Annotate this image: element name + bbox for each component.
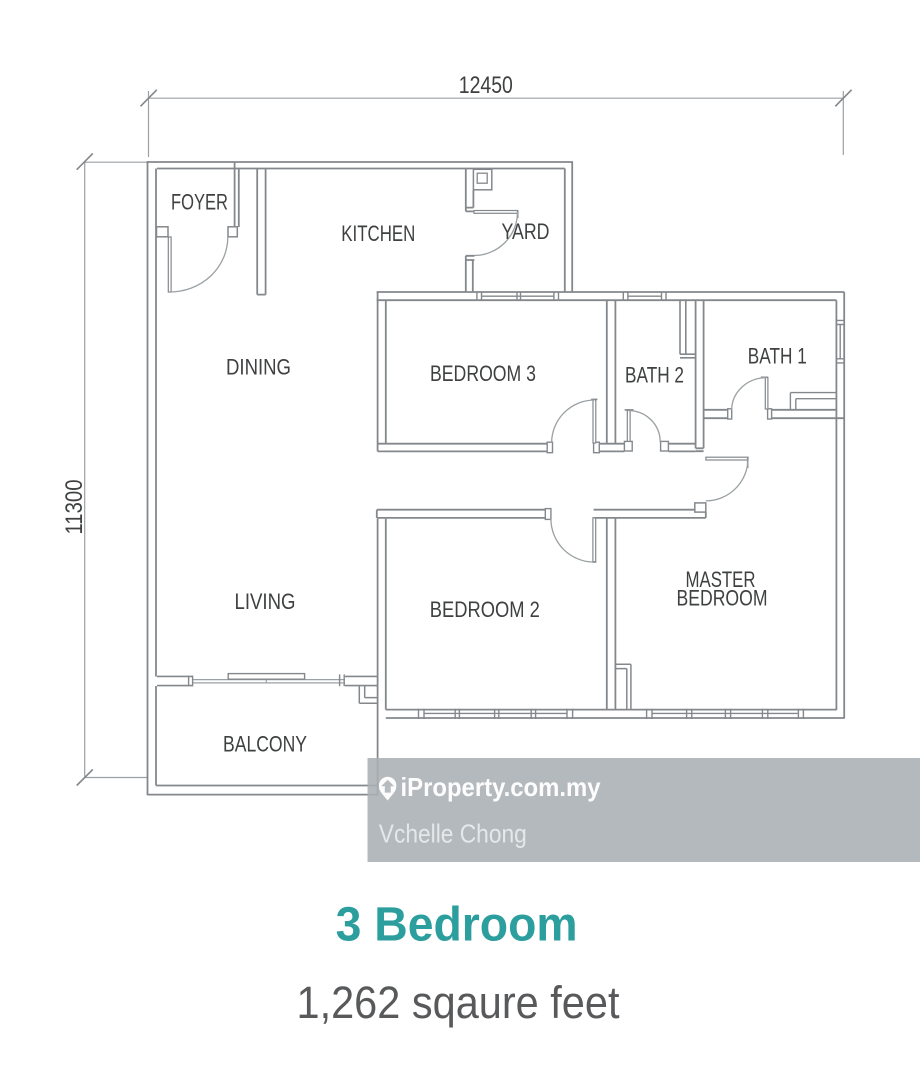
svg-text:1,262 sqaure feet: 1,262 sqaure feet xyxy=(297,977,620,1028)
svg-text:DINING: DINING xyxy=(226,355,291,380)
svg-text:BATH 2: BATH 2 xyxy=(625,363,684,388)
svg-text:BEDROOM 3: BEDROOM 3 xyxy=(430,361,536,386)
svg-text:BEDROOM: BEDROOM xyxy=(677,586,768,611)
svg-text:KITCHEN: KITCHEN xyxy=(341,221,415,246)
svg-text:12450: 12450 xyxy=(459,72,513,99)
svg-text:iProperty.com.my: iProperty.com.my xyxy=(401,772,601,802)
svg-text:BEDROOM 2: BEDROOM 2 xyxy=(430,597,540,622)
svg-text:FOYER: FOYER xyxy=(171,190,228,215)
svg-text:BALCONY: BALCONY xyxy=(223,732,307,757)
svg-text:LIVING: LIVING xyxy=(235,589,296,614)
svg-text:Vchelle Chong: Vchelle Chong xyxy=(379,819,527,849)
svg-text:11300: 11300 xyxy=(61,480,88,535)
svg-text:3 Bedroom: 3 Bedroom xyxy=(336,899,578,952)
svg-text:BATH 1: BATH 1 xyxy=(748,344,807,369)
svg-text:YARD: YARD xyxy=(502,219,550,244)
